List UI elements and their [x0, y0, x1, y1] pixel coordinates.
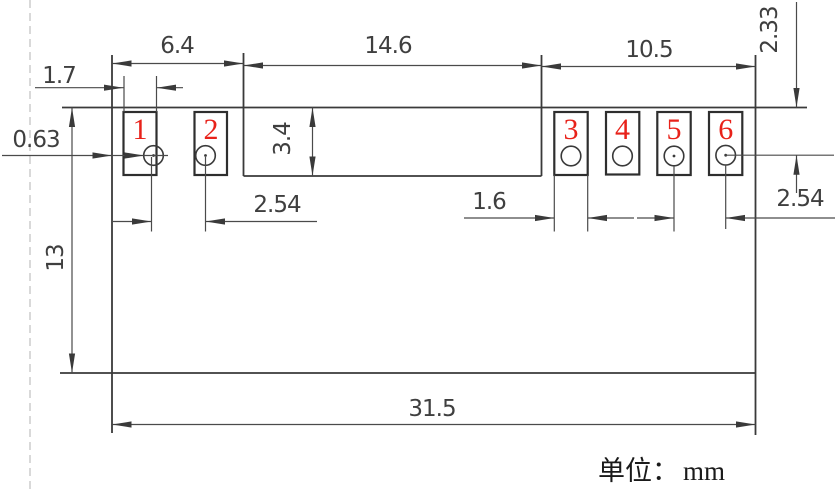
dim-label-13: 13 [43, 244, 69, 271]
pin-5-number: 5 [667, 113, 682, 146]
dim-label-31.5: 31.5 [408, 396, 455, 422]
unit-note-mm: mm [683, 456, 725, 486]
dim-label-14.6: 14.6 [364, 33, 412, 59]
dim-label-2.54-right: 2.54 [776, 186, 824, 212]
pin-6-number: 6 [718, 113, 733, 146]
pin-4-number: 4 [615, 113, 630, 146]
unit-note: 单位：mm [598, 456, 725, 487]
dim-label-6.4: 6.4 [160, 33, 194, 59]
pin-4-hole [613, 146, 633, 166]
dim-label-0.63: 0.63 [12, 127, 59, 153]
dim-label-2.54-left: 2.54 [253, 192, 301, 218]
part-outline [60, 53, 807, 435]
dim-label-2.33: 2.33 [757, 6, 783, 53]
dimension-lines [2, 2, 835, 425]
pin-3-number: 3 [564, 113, 579, 146]
dimension-labels: 6.4 14.6 10.5 1.7 0.63 2.54 1.6 2.54 31.… [12, 6, 824, 422]
pin-3-hole [561, 146, 581, 166]
pin-numbers: 1 2 3 4 5 6 [133, 113, 734, 146]
pin-5-center-dot [673, 155, 676, 158]
technical-drawing-page: 6.4 14.6 10.5 1.7 0.63 2.54 1.6 2.54 31.… [0, 0, 836, 490]
dim-label-1.7: 1.7 [42, 63, 76, 89]
dim-label-10.5: 10.5 [625, 37, 672, 63]
dim-label-3.4: 3.4 [270, 122, 296, 156]
dim-label-1.6: 1.6 [472, 189, 506, 215]
pin-2-center-dot [204, 154, 207, 157]
unit-note-cn: 单位： [598, 456, 679, 487]
pin-1-number: 1 [133, 113, 148, 146]
footprint-dimension-drawing: 6.4 14.6 10.5 1.7 0.63 2.54 1.6 2.54 31.… [0, 0, 836, 490]
pin-2-number: 2 [204, 113, 219, 146]
